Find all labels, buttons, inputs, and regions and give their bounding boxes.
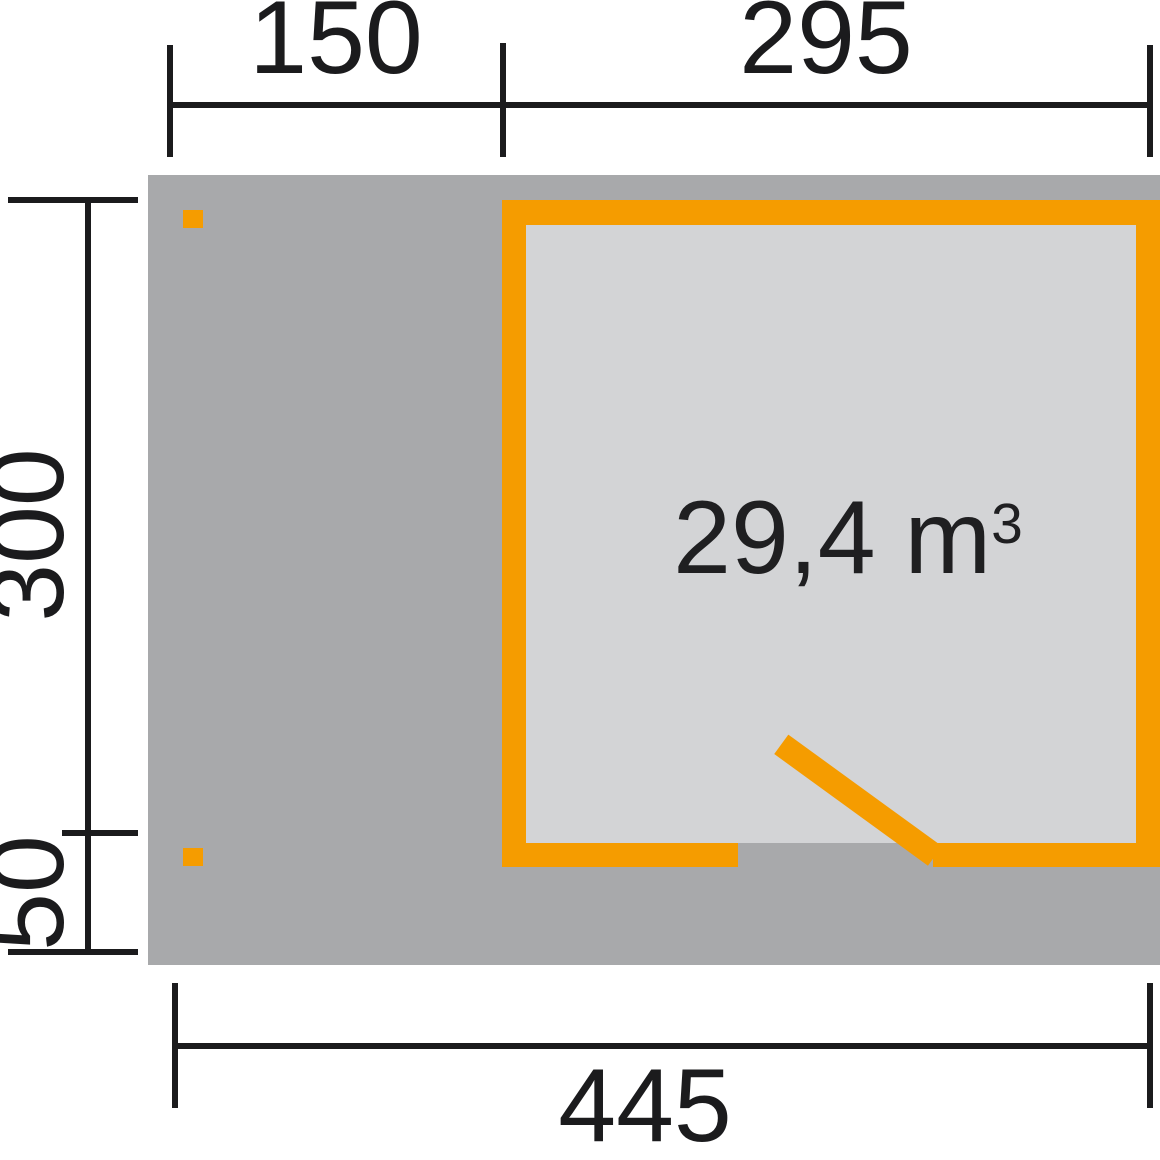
dim-top-tick-right — [1147, 45, 1153, 157]
dim-top-tick-left — [167, 45, 173, 157]
dim-label-bottom-total-width: 445 — [545, 1054, 745, 1158]
dim-bottom-tick-right — [1147, 983, 1153, 1108]
wall-top — [502, 200, 1160, 225]
dim-left-line — [85, 200, 91, 955]
dim-top-tick-middle — [500, 43, 506, 157]
wall-bottom-left-segment — [502, 843, 738, 867]
dim-bottom-tick-left — [172, 983, 178, 1108]
volume-label: 29,4 m3 — [598, 486, 1098, 590]
volume-value: 29,4 m — [673, 480, 991, 596]
floor-plan-canvas: 29,4 m3 150 295 300 50 445 — [0, 0, 1160, 1160]
wall-left — [502, 200, 526, 867]
dim-label-top-room-width: 295 — [726, 0, 926, 90]
wall-right — [1136, 200, 1160, 867]
volume-exponent: 3 — [991, 492, 1023, 556]
dim-left-tick-top — [8, 197, 138, 203]
wall-bottom-right-segment — [933, 843, 1160, 867]
post-marker-rear — [183, 210, 203, 228]
dim-label-top-left-width: 150 — [236, 0, 436, 90]
post-marker-front — [183, 848, 203, 866]
dim-top-line — [170, 102, 1150, 108]
